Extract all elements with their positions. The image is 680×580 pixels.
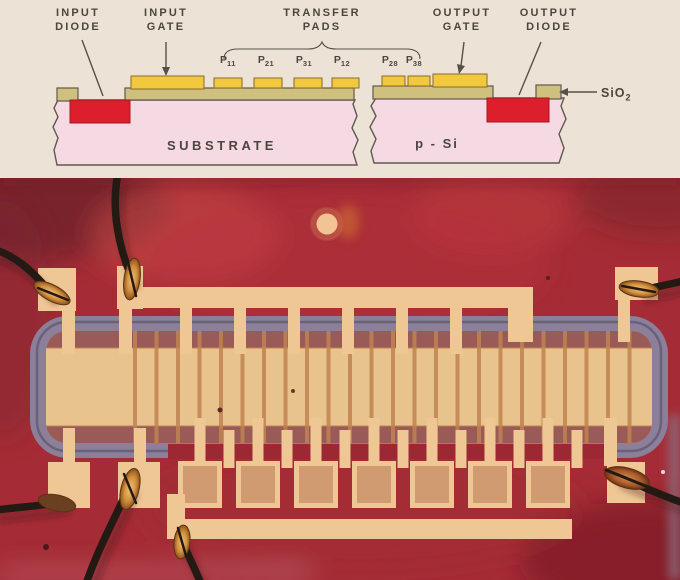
label-input-diode-line2: DIODE (28, 21, 128, 35)
phase-pad-square-center (357, 466, 391, 503)
square-finger (543, 418, 554, 464)
ccd-figure: SUBSTRATE p - Si SiO2 INPUT DIODE INPUT … (0, 0, 680, 580)
input-diode-leader (82, 40, 103, 96)
output-gate-arrowhead (457, 64, 465, 74)
phase-pad-square-center (299, 466, 333, 503)
label-output-diode-line1: OUTPUT (499, 7, 599, 21)
output-gate-arrow (461, 42, 464, 66)
transfer-pad-p31 (294, 78, 322, 88)
oxide-layer-right (373, 86, 493, 99)
input-gate-pad (131, 76, 204, 89)
transfer-pad-label: P11 (213, 54, 243, 66)
bottom-bus-terminal (167, 494, 185, 522)
square-finger (369, 418, 380, 464)
output-gate-pad (433, 74, 487, 87)
transfer-pad-p21 (254, 78, 282, 88)
label-output-gate: OUTPUT GATE (412, 7, 512, 34)
transfer-pad-p11 (214, 78, 242, 88)
bus-finger (450, 306, 462, 354)
phase-bus-bar (142, 287, 532, 308)
p-si-label: p - Si (415, 136, 459, 151)
bus-finger (342, 306, 354, 354)
chip-micrograph (0, 178, 680, 580)
output-diode-feed (604, 418, 617, 466)
transfer-pad-p28 (382, 76, 405, 86)
stub-finger (282, 430, 293, 468)
stub-finger (514, 430, 525, 468)
bus-finger (180, 306, 192, 354)
phase-pad-square-center (415, 466, 449, 503)
label-input-gate-line1: INPUT (116, 7, 216, 21)
stub-finger (224, 430, 235, 468)
input-pad-finger (62, 308, 75, 354)
label-input-gate: INPUT GATE (116, 7, 216, 34)
square-finger (311, 418, 322, 464)
label-output-gate-line1: OUTPUT (412, 7, 512, 21)
phase-pad-square-center (473, 466, 507, 503)
phase-pad-square-center (531, 466, 565, 503)
sio2-label: SiO2 (601, 86, 632, 103)
square-finger (485, 418, 496, 464)
transfer-pad-p12 (332, 78, 359, 88)
sio2-label-sub: 2 (626, 93, 632, 103)
transfer-pad-label: P12 (327, 54, 357, 66)
phase-pad-square-center (241, 466, 275, 503)
stub-finger (456, 430, 467, 468)
bus-finger (288, 306, 300, 354)
probe-mark (311, 208, 343, 240)
phase-pad-square-center (183, 466, 217, 503)
input-diode-region (70, 100, 130, 123)
pad2-finger (134, 428, 146, 464)
output-diode-region (487, 98, 549, 122)
sio2-label-base: SiO (601, 86, 626, 100)
label-transfer-pads: TRANSFER PADS (260, 7, 384, 34)
sio2-tab-right (536, 85, 561, 99)
transfer-pad-label: P38 (399, 54, 429, 66)
label-output-diode-line2: DIODE (499, 21, 599, 35)
output-gate-feed (618, 298, 630, 342)
label-input-diode: INPUT DIODE (28, 7, 128, 34)
transfer-pad-label: P21 (251, 54, 281, 66)
substrate-label: SUBSTRATE (167, 138, 277, 153)
bus-finger (396, 306, 408, 354)
input-gate-finger (119, 306, 132, 354)
stub-finger (398, 430, 409, 468)
label-output-gate-line2: GATE (412, 21, 512, 35)
bus-end-block (508, 287, 533, 342)
label-input-diode-line1: INPUT (28, 7, 128, 21)
oxide-layer-left (125, 88, 354, 100)
label-transfer-pads-line2: PADS (260, 21, 384, 35)
square-finger (195, 418, 206, 464)
label-transfer-pads-line1: TRANSFER (260, 7, 384, 21)
label-output-diode: OUTPUT DIODE (499, 7, 599, 34)
square-finger (427, 418, 438, 464)
transfer-pad-label: P31 (289, 54, 319, 66)
sio2-tab-left (57, 88, 78, 101)
gate-pads (131, 74, 487, 89)
bottom-bus-bar (167, 519, 572, 539)
input-gate-arrowhead (162, 67, 170, 76)
schematic-cross-section: SUBSTRATE p - Si SiO2 INPUT DIODE INPUT … (0, 0, 680, 178)
stub-finger (340, 430, 351, 468)
label-input-gate-line2: GATE (116, 21, 216, 35)
pad1-finger (63, 428, 75, 464)
transfer-pad-p38 (408, 76, 430, 86)
stub-finger (572, 430, 583, 468)
bus-finger (234, 306, 246, 354)
square-finger (253, 418, 264, 464)
